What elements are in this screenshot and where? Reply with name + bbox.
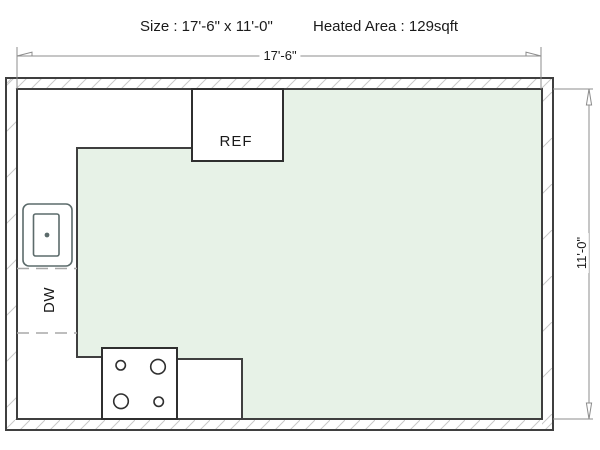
arrow-up-icon (586, 89, 591, 105)
cooktop-box (102, 348, 177, 419)
burner-top-right (151, 359, 166, 374)
arrow-left-icon (17, 52, 32, 56)
width-dimension-label: 17'-6" (259, 49, 300, 63)
burner-bottom-left (114, 394, 129, 409)
wall-hatch-right (542, 78, 553, 430)
arrow-right-icon (526, 52, 541, 56)
sink-drain-dot (45, 233, 50, 238)
burner-bottom-right (154, 397, 163, 406)
wall-hatch-left (6, 78, 17, 430)
height-dimension-label: 11'-0" (575, 233, 589, 273)
heated-area-label: Heated Area : 129sqft (313, 19, 458, 36)
burner-top-left (116, 361, 125, 370)
floor-plan-canvas: Size : 17'-6" x 11'-0" Heated Area : 129… (0, 0, 600, 450)
arrow-down-icon (586, 403, 591, 419)
wall-hatch-top (6, 78, 553, 89)
wall-hatch-bottom (6, 419, 553, 430)
refrigerator-label: REF (220, 134, 253, 151)
dishwasher-label: DW (42, 287, 59, 313)
floor-plan-drawing (0, 0, 600, 450)
size-label: Size : 17'-6" x 11'-0" (140, 19, 273, 36)
